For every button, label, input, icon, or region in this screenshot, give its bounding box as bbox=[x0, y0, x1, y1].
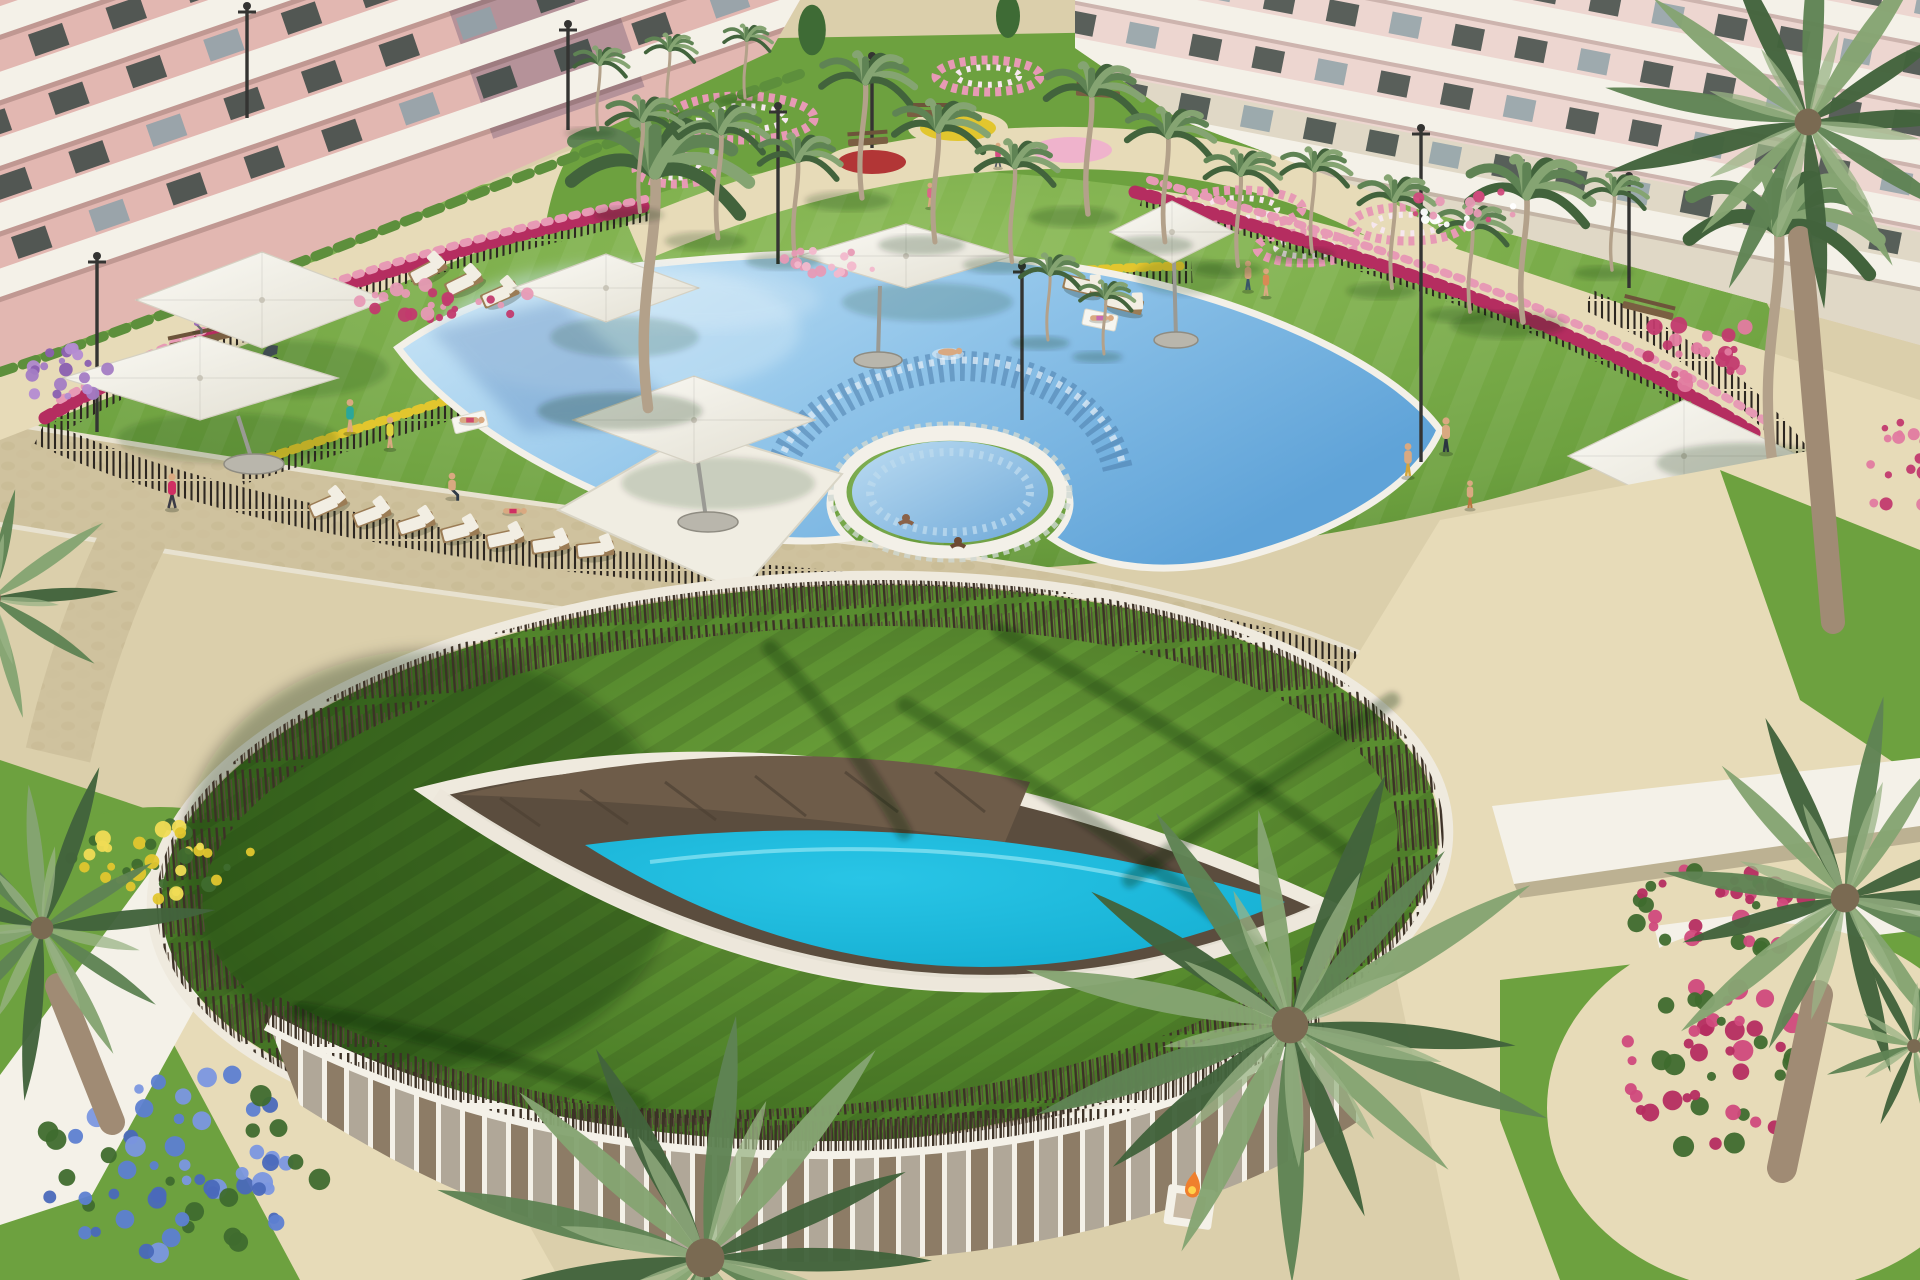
render-stage: Aerial 3D render - resort garden with cr… bbox=[0, 0, 1920, 1280]
cypress-tree bbox=[798, 5, 826, 56]
jacuzzi-water bbox=[852, 441, 1048, 543]
aerial-resort-render: Aerial 3D render - resort garden with cr… bbox=[0, 0, 1920, 1280]
